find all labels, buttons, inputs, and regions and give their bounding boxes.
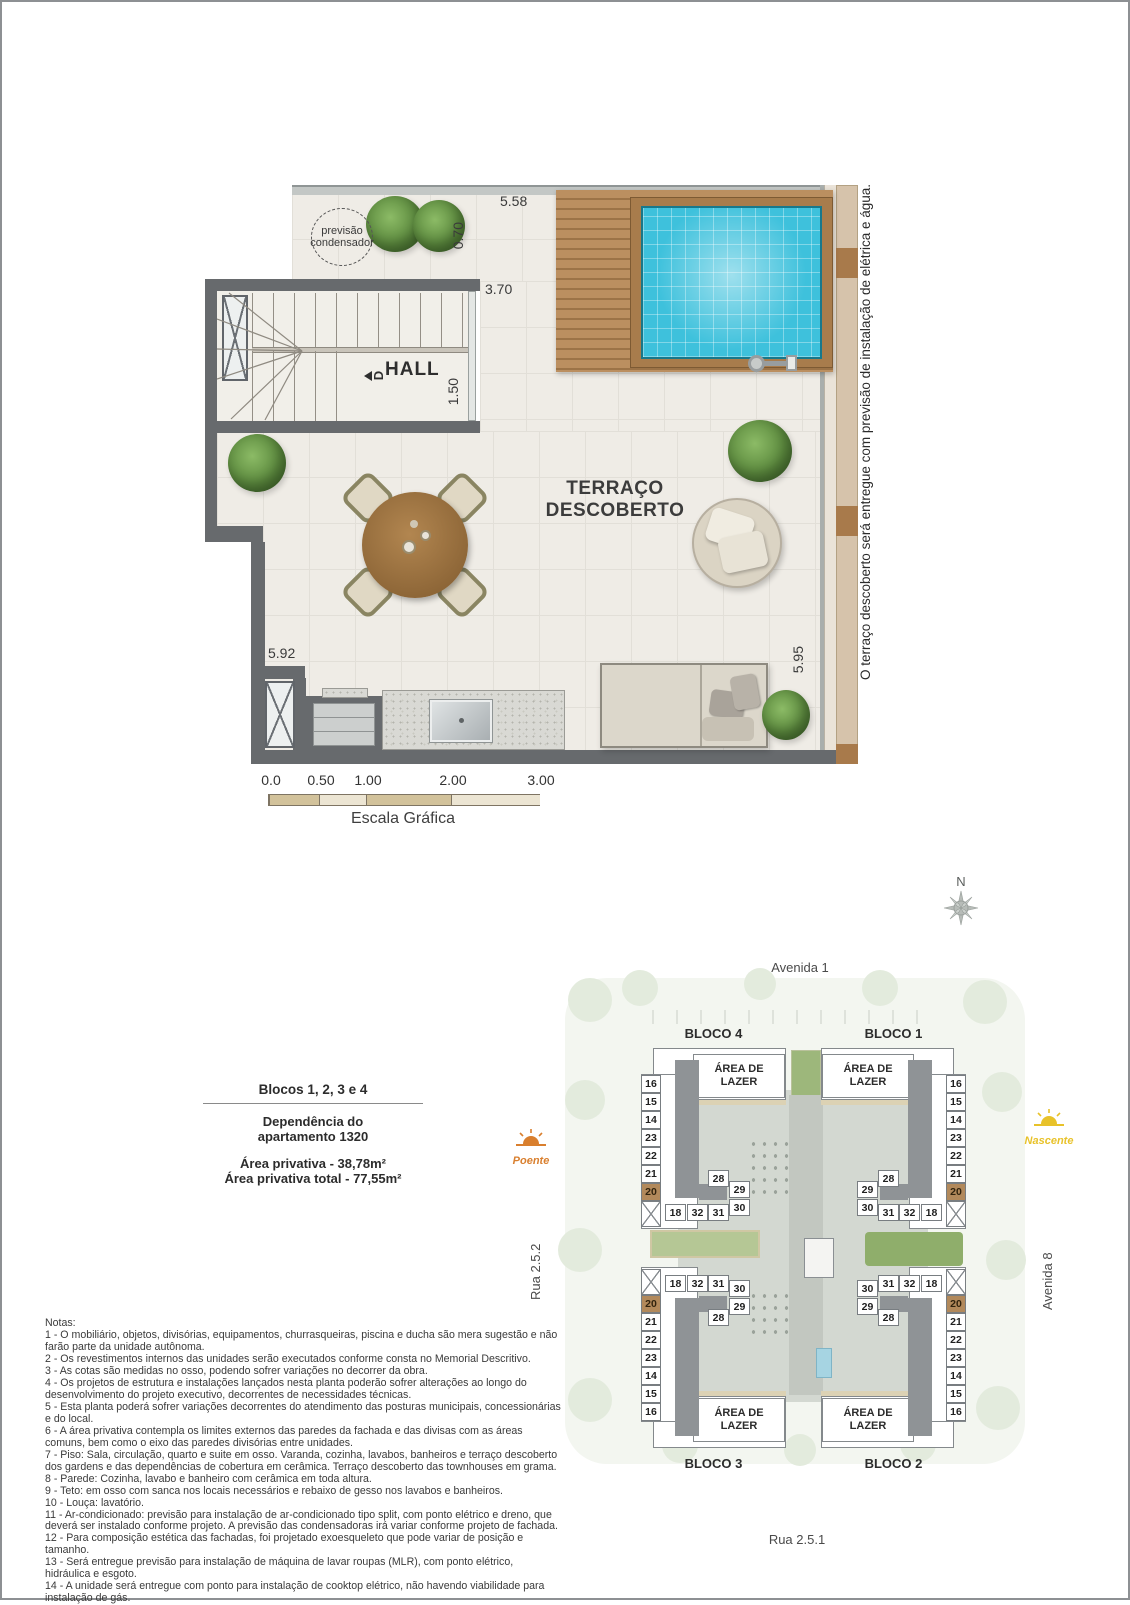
unit-cell: 30 — [729, 1199, 750, 1216]
dim-right: 5.95 — [790, 646, 806, 673]
unit-cell: 30 — [857, 1199, 878, 1216]
unit-cell: 28 — [878, 1309, 899, 1326]
unit-cell: 20 — [641, 1183, 661, 1201]
unit-cell: 23 — [641, 1349, 661, 1367]
scale-caption: Escala Gráfica — [303, 810, 503, 828]
scale-bar-segment — [319, 795, 367, 805]
scale-tick-label: 3.00 — [524, 772, 558, 788]
unit-cell: 14 — [946, 1111, 966, 1129]
note-item: 8 - Parede: Cozinha, lavabo e banheiro c… — [45, 1474, 561, 1486]
side-note: O terraço descoberto será entregue com p… — [858, 180, 873, 680]
unit-cell: 31 — [708, 1204, 729, 1221]
building-core — [908, 1298, 932, 1436]
note-item: 9 - Teto: em osso com sanca nos locais n… — [45, 1486, 561, 1498]
right-wall-brown-block-1 — [836, 248, 858, 278]
right-wall-brown-block-2 — [836, 506, 858, 536]
leisure-area-label: ÁREA DE — [843, 1063, 892, 1076]
unit-cell: 28 — [878, 1170, 899, 1187]
street-left: Rua 2.5.2 — [528, 1180, 543, 1300]
unit-cell: 28 — [708, 1309, 729, 1326]
notes-list: 1 - O mobiliário, objetos, divisórias, e… — [45, 1330, 561, 1605]
leisure-area-label: LAZER — [721, 1076, 758, 1089]
unit-cell: 29 — [729, 1181, 750, 1198]
unit-cell: 16 — [946, 1075, 966, 1093]
scale-tick-label: 2.00 — [436, 772, 470, 788]
unit-cell: 31 — [878, 1204, 899, 1221]
scale-tick-label: 1.00 — [351, 772, 385, 788]
site-block: ÁREA DELAZER16151423222120282930183231 — [821, 1263, 966, 1448]
terrace-label-line1: TERRAÇO — [520, 478, 710, 500]
terrace-label: TERRAÇO DESCOBERTO — [520, 478, 710, 522]
unit-cell: 31 — [878, 1275, 899, 1292]
kitchen-cabinet — [313, 703, 375, 746]
note-item: 7 - Piso: Sala, circulação, quarto e sui… — [45, 1450, 561, 1474]
unit-cell: 18 — [921, 1204, 942, 1221]
right-wall-brown-block-3 — [836, 744, 858, 764]
kitchen-granite-chip — [322, 688, 368, 698]
plant — [762, 690, 810, 740]
lower-shaft — [265, 681, 295, 748]
scale-bar: 0.00.501.002.003.00 — [268, 772, 558, 812]
table-cup — [420, 530, 431, 541]
note-item: 6 - A área privativa contempla os limite… — [45, 1426, 561, 1450]
scale-tick-label: 0.0 — [254, 772, 288, 788]
left-wall-upper — [205, 431, 217, 534]
table-cup — [402, 540, 416, 554]
dim-stair: 3.70 — [485, 281, 512, 297]
dim-recess: 0.70 — [450, 222, 466, 249]
unit-cell: 16 — [641, 1075, 661, 1093]
scale-bar-segment — [451, 795, 540, 805]
note-item: 1 - O mobiliário, objetos, divisórias, e… — [45, 1330, 561, 1354]
pool-water — [641, 206, 822, 359]
unit-cell: 22 — [641, 1331, 661, 1349]
leisure-area-label: ÁREA DE — [714, 1063, 763, 1076]
unit-cell: 21 — [641, 1313, 661, 1331]
unit-cell: 22 — [641, 1147, 661, 1165]
unit-cell: 32 — [687, 1204, 708, 1221]
block-label: BLOCO 2 — [821, 1456, 966, 1471]
leisure-area-box: ÁREA DELAZER — [693, 1054, 785, 1098]
unit-cell: 21 — [641, 1165, 661, 1183]
unit-cell: 30 — [857, 1280, 878, 1297]
note-item: 11 - Ar-condicionado: previsão para inst… — [45, 1510, 561, 1534]
sun-west: Poente — [500, 1128, 562, 1167]
note-item: 12 - Para composição estética das fachad… — [45, 1533, 561, 1557]
dim-left: 5.92 — [268, 645, 295, 661]
block-shaft — [946, 1269, 966, 1295]
unit-cell: 15 — [641, 1385, 661, 1403]
unit-cell: 29 — [729, 1298, 750, 1315]
sun-east: Nascente — [1018, 1108, 1080, 1147]
unit-cell: 23 — [641, 1129, 661, 1147]
terrace-label-line2: DESCOBERTO — [520, 500, 710, 522]
floor-plan: HALL D — [0, 0, 1130, 830]
unit-cell: 20 — [641, 1295, 661, 1313]
block-label: BLOCO 4 — [641, 1026, 786, 1041]
leisure-area-label: LAZER — [850, 1076, 887, 1089]
unit-cell: 29 — [857, 1298, 878, 1315]
sun-east-label: Nascente — [1018, 1135, 1080, 1147]
street-bottom: Rua 2.5.1 — [722, 1532, 872, 1547]
left-wall-lower — [251, 542, 265, 754]
outside-mask — [195, 541, 251, 771]
scale-tick-label: 0.50 — [304, 772, 338, 788]
scale-bar-segment — [366, 795, 452, 805]
note-item: 5 - Esta planta poderá sofrer variações … — [45, 1402, 561, 1426]
street-right: Avenida 8 — [1040, 1190, 1055, 1310]
block-label: BLOCO 1 — [821, 1026, 966, 1041]
plant — [728, 420, 792, 482]
site-block: ÁREA DELAZER16151423222120282930183231 — [641, 1048, 786, 1233]
unit-cell: 22 — [946, 1147, 966, 1165]
scale-bar-segment — [269, 795, 320, 805]
dim-hall: 1.50 — [445, 378, 461, 405]
unit-cell: 20 — [946, 1183, 966, 1201]
stair-direction: D — [364, 368, 383, 383]
stair-winder-lines — [217, 291, 480, 423]
leisure-area-box: ÁREA DELAZER — [822, 1398, 914, 1442]
leisure-area-box: ÁREA DELAZER — [693, 1398, 785, 1442]
unit-cell: 16 — [641, 1403, 661, 1421]
dining-set — [340, 470, 490, 620]
note-item: 10 - Louça: lavatório. — [45, 1498, 561, 1510]
leisure-area-box: ÁREA DELAZER — [822, 1054, 914, 1098]
unit-cell: 16 — [946, 1403, 966, 1421]
plant — [228, 434, 286, 492]
unit-cell: 14 — [946, 1367, 966, 1385]
table-cup — [410, 520, 418, 528]
site-block: ÁREA DELAZER16151423222120282930183231 — [821, 1048, 966, 1233]
block-label: BLOCO 3 — [641, 1456, 786, 1471]
unit-cell: 15 — [946, 1385, 966, 1403]
sunset-icon — [514, 1128, 548, 1150]
unit-cell: 18 — [665, 1204, 686, 1221]
note-item: 4 - Os projetos de estrutura e instalaçõ… — [45, 1378, 561, 1402]
daybed — [600, 663, 768, 748]
note-item: 13 - Será entregue previsão para instala… — [45, 1557, 561, 1581]
compass-north-label: N — [938, 874, 984, 889]
unit-cell: 14 — [641, 1367, 661, 1385]
building-core — [908, 1060, 932, 1198]
unit-cell: 32 — [899, 1275, 920, 1292]
unit-cell: 23 — [946, 1129, 966, 1147]
block-shaft — [641, 1201, 661, 1227]
unit-cell: 28 — [708, 1170, 729, 1187]
unit-cell: 29 — [857, 1181, 878, 1198]
bottom-wall — [251, 750, 836, 764]
unit-cell: 15 — [641, 1093, 661, 1111]
compass: N — [938, 874, 984, 930]
unit-cell: 30 — [729, 1280, 750, 1297]
building-core — [675, 1298, 699, 1436]
unit-cell: 20 — [946, 1295, 966, 1313]
compass-rose-icon — [943, 890, 979, 926]
stair-direction-letter: D — [371, 371, 386, 380]
unit-cell: 15 — [946, 1093, 966, 1111]
building-core — [675, 1060, 699, 1198]
unit-cell: 18 — [921, 1275, 942, 1292]
block-shaft — [641, 1269, 661, 1295]
unit-cell: 18 — [665, 1275, 686, 1292]
sunrise-icon — [1032, 1108, 1066, 1130]
condenser-circle: previsão condensador — [311, 208, 373, 266]
unit-cell: 21 — [946, 1165, 966, 1183]
hall-label: HALL — [385, 359, 480, 381]
unit-cell: 23 — [946, 1349, 966, 1367]
condenser-label-1: previsão — [321, 225, 363, 237]
site-block: ÁREA DELAZER16151423222120282930183231 — [641, 1263, 786, 1448]
stair-wall-left — [205, 279, 217, 433]
left-wall-step — [205, 526, 263, 542]
shower-icon — [748, 354, 798, 374]
dim-top: 5.58 — [500, 193, 527, 209]
unit-cell: 31 — [708, 1275, 729, 1292]
kitchen-faucet — [459, 718, 464, 723]
street-top: Avenida 1 — [725, 960, 875, 975]
leisure-area-label: LAZER — [850, 1420, 887, 1433]
unit-cell: 21 — [946, 1313, 966, 1331]
note-item: 14 - A unidade será entregue com ponto p… — [45, 1581, 561, 1605]
unit-cell: 22 — [946, 1331, 966, 1349]
unit-cell: 32 — [899, 1204, 920, 1221]
block-shaft — [946, 1201, 966, 1227]
leisure-area-label: ÁREA DE — [714, 1407, 763, 1420]
notes-panel: Notas: 1 - O mobiliário, objetos, divisó… — [45, 1318, 561, 1605]
unit-cell: 14 — [641, 1111, 661, 1129]
stair-wall-top — [205, 279, 480, 291]
leisure-area-label: ÁREA DE — [843, 1407, 892, 1420]
leisure-area-label: LAZER — [721, 1420, 758, 1433]
condenser-label-2: condensador — [310, 237, 374, 249]
unit-cell: 32 — [687, 1275, 708, 1292]
sun-west-label: Poente — [500, 1155, 562, 1167]
